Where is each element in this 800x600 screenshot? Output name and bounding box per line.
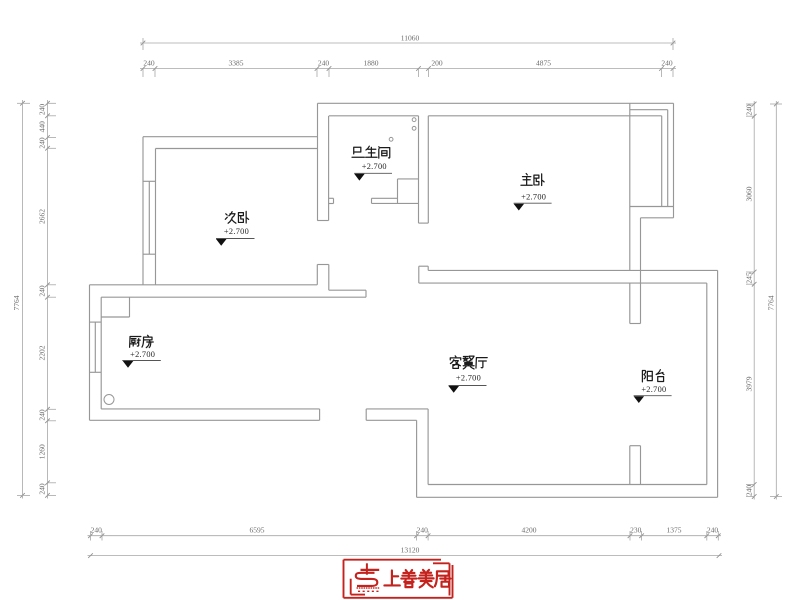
svg-text:1375: 1375 [667, 526, 682, 535]
svg-text:+2.700: +2.700 [362, 162, 387, 171]
svg-text:2202: 2202 [38, 345, 47, 360]
svg-text:240: 240 [318, 59, 330, 68]
svg-text:240: 240 [38, 285, 47, 297]
svg-text:13120: 13120 [401, 546, 420, 555]
svg-text:7764: 7764 [767, 295, 776, 310]
svg-text:240: 240 [38, 137, 47, 149]
svg-text:240: 240 [707, 526, 719, 535]
svg-text:4875: 4875 [536, 59, 551, 68]
svg-text:3060: 3060 [745, 186, 754, 201]
svg-text:3979: 3979 [745, 376, 754, 391]
svg-text:240: 240 [661, 59, 673, 68]
svg-text:240: 240 [38, 409, 47, 421]
svg-text:2662: 2662 [38, 209, 47, 224]
svg-text:+2.700: +2.700 [641, 385, 666, 394]
svg-text:240: 240 [143, 59, 155, 68]
svg-text:1880: 1880 [364, 59, 379, 68]
svg-text:240: 240 [745, 485, 754, 497]
svg-text:240: 240 [38, 104, 47, 116]
svg-text:245: 245 [745, 272, 754, 284]
svg-text:200: 200 [431, 59, 443, 68]
svg-text:+2.700: +2.700 [456, 374, 481, 383]
svg-text:240: 240 [745, 104, 754, 116]
svg-text:230: 230 [630, 526, 642, 535]
svg-text:4200: 4200 [522, 526, 537, 535]
svg-text:240: 240 [417, 526, 429, 535]
svg-text:+2.700: +2.700 [224, 227, 249, 236]
svg-text:440: 440 [38, 121, 47, 133]
svg-text:11060: 11060 [401, 34, 420, 43]
svg-text:240: 240 [38, 483, 47, 495]
svg-text:+2.700: +2.700 [521, 192, 546, 201]
svg-text:3385: 3385 [229, 59, 244, 68]
svg-text:7764: 7764 [12, 295, 21, 310]
svg-text:+2.700: +2.700 [130, 350, 155, 359]
svg-text:6595: 6595 [250, 526, 265, 535]
svg-text:1260: 1260 [38, 444, 47, 459]
svg-text:240: 240 [91, 526, 103, 535]
